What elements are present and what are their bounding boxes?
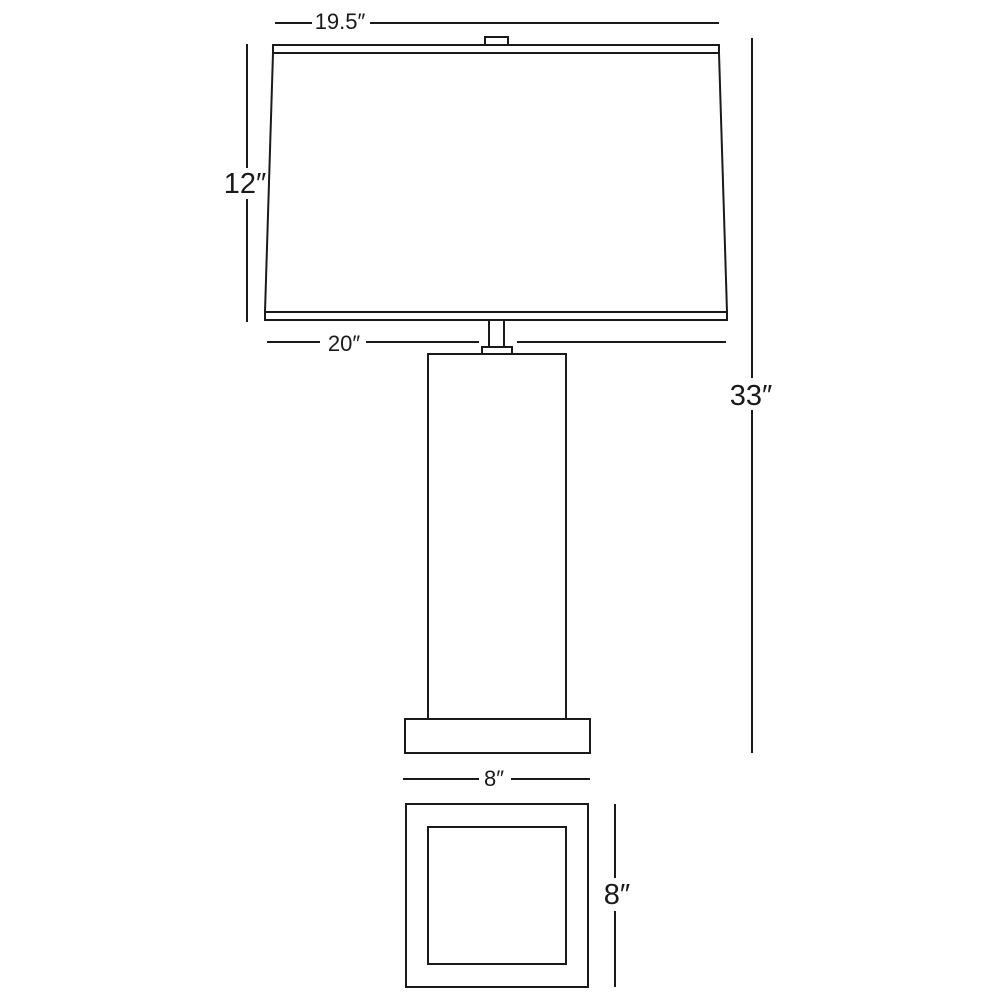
dim-overall-height: 33″ — [730, 38, 773, 753]
base-width-label: 8″ — [484, 766, 504, 791]
lamp-dimension-diagram: 19.5″ 12″ 20″ 33″ — [0, 0, 1000, 1000]
neck-flange — [482, 347, 512, 354]
diagram-canvas: 19.5″ 12″ 20″ 33″ — [0, 0, 1000, 1000]
dim-shade-top-width: 19.5″ — [275, 9, 719, 34]
finial — [485, 37, 508, 45]
dim-shade-height: 12″ — [224, 44, 267, 322]
dim-base-width: 8″ — [403, 766, 590, 791]
lamp-column — [428, 354, 566, 719]
dim-base-depth: 8″ — [604, 804, 630, 987]
front-view — [265, 37, 727, 753]
bottom-view — [406, 804, 588, 987]
shade-height-label: 12″ — [224, 168, 267, 200]
base-inner-square — [428, 827, 566, 964]
shade-right-edge — [719, 53, 727, 312]
shade-top-width-label: 19.5″ — [315, 9, 366, 34]
overall-height-label: 33″ — [730, 380, 773, 412]
lamp-base-plinth — [405, 719, 590, 753]
base-depth-label: 8″ — [604, 879, 630, 911]
shade-top-rim — [273, 45, 719, 53]
shade-bottom-rim — [265, 312, 727, 320]
drawing-root: 19.5″ 12″ 20″ 33″ — [224, 9, 773, 987]
shade-bottom-width-label: 20″ — [328, 331, 360, 356]
neck-stem — [489, 320, 504, 347]
